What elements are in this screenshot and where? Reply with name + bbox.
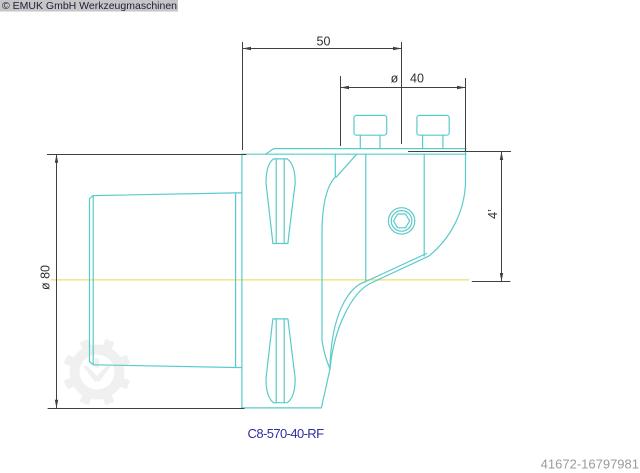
svg-text:ø: ø [391, 72, 399, 86]
svg-text:40: 40 [410, 72, 424, 86]
svg-text:© EMUK GmbH Werkzeugmaschinen: © EMUK GmbH Werkzeugmaschinen [2, 0, 177, 12]
svg-text:50: 50 [317, 35, 331, 49]
svg-text:4’: 4’ [486, 209, 500, 219]
svg-text:41672-16797981: 41672-16797981 [541, 457, 639, 472]
svg-text:C8-570-40-RF: C8-570-40-RF [248, 426, 325, 441]
svg-text:ø 80: ø 80 [39, 265, 53, 290]
